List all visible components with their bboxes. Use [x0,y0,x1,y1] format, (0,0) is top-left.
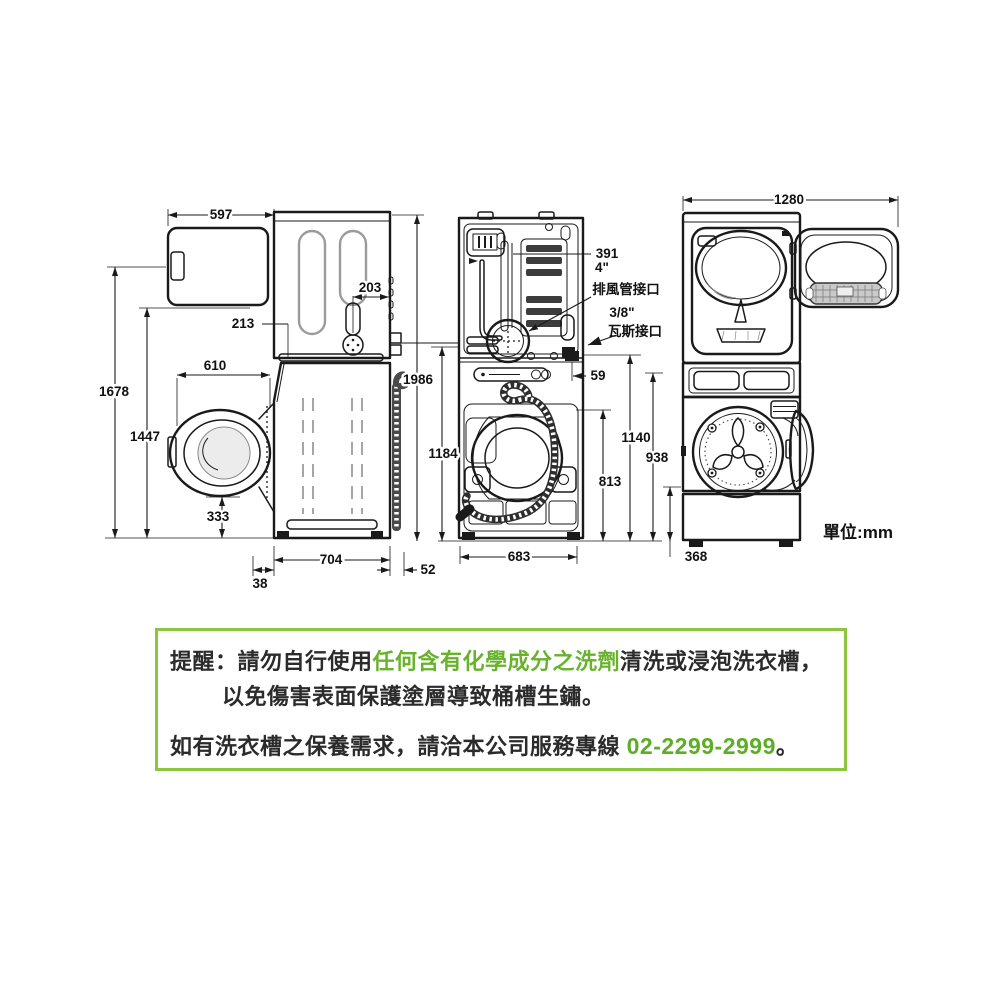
dim-213: 213 [232,316,255,331]
dim-1184: 1184 [428,446,458,461]
dryer-door-handle [171,252,184,280]
dim-38: 38 [252,576,268,591]
lint-filter-slot [717,329,765,342]
washer-foot [277,531,289,538]
screw [546,224,553,231]
notice-box: 提醒：請勿自行使用任何含有化學成分之洗劑清洗或浸泡洗衣槽， 以免傷害表面保護塗層… [155,628,847,771]
dim-1447: 1447 [130,429,160,444]
front-foot [689,540,703,547]
drum-spoke [713,455,732,469]
drum-spoke [744,455,763,469]
rear-view [459,212,583,540]
washer-cabinet-side [274,363,390,538]
dim-813: 813 [599,474,622,489]
dim-704: 704 [320,552,343,567]
dim-938: 938 [646,450,669,465]
notice-phone-number: 02-2299-2999 [627,733,776,759]
washer-drum-door [693,407,783,497]
label-gas-port: 瓦斯接口 [608,323,662,339]
gas-valve-side [343,335,363,355]
label-exhaust-size: 4" [595,260,609,275]
dim-52: 52 [420,562,435,577]
dim-597: 597 [210,207,233,222]
door-latch [782,231,789,236]
dim-391: 391 [596,246,619,261]
dimension-diagram: 597 203 213 610 1678 1447 333 704 38 52 … [0,0,1000,620]
drum-paddle [735,300,746,322]
notice-line1-highlight: 任何含有化學成分之洗劑 [373,649,621,674]
door-handle [786,440,791,458]
dim-683: 683 [508,549,531,564]
dim-610: 610 [204,358,227,373]
notice-line1-suffix: 清洗或浸泡洗衣槽， [620,649,823,674]
riser-vent [694,372,739,390]
dim-1986: 1986 [403,372,434,387]
dim-1678: 1678 [99,384,130,399]
pedestal [683,494,800,540]
notice-line3-suffix: 。 [776,734,799,759]
gas-inlet-side [390,333,401,343]
dryer-open-door-side [168,228,268,305]
front-foot [779,540,793,547]
unit-label: 單位:mm [823,522,893,542]
vent-slat [526,245,562,252]
notice-line1: 提醒：請勿自行使用任何含有化學成分之洗劑清洗或浸泡洗衣槽， [170,644,823,676]
label-gas-size: 3/8" [609,305,634,320]
dim-203: 203 [359,280,382,295]
notice-line3-prefix: 如有洗衣槽之保養需求，請洽本公司服務專線 [170,734,627,759]
notice-line3: 如有洗衣槽之保養需求，請洽本公司服務專線 02-2299-2999。 [170,729,798,761]
dim-368: 368 [685,549,708,564]
rear-foot [567,532,580,540]
dim-59: 59 [590,368,605,383]
drum-hub [732,446,744,458]
dim-333: 333 [207,509,230,524]
notice-line1-prefix: 提醒：請勿自行使用 [170,649,373,674]
dim-1140: 1140 [621,430,650,445]
rear-foot [462,532,475,540]
label-exhaust-port: 排風管接口 [592,281,660,297]
side-panel-groove [299,231,325,334]
front-view [681,213,898,547]
riser-vent [744,372,789,390]
door-catch [681,446,686,456]
washer-foot [371,531,383,538]
washer-open-door [790,411,813,489]
notice-line2: 以免傷害表面保護塗層導致桶槽生鏽。 [222,679,605,711]
spec-sheet: 597 203 213 610 1678 1447 333 704 38 52 … [0,0,1000,1000]
dim-1280: 1280 [774,192,804,207]
dryer-drum-opening [696,231,786,305]
drum-spoke [732,418,743,446]
